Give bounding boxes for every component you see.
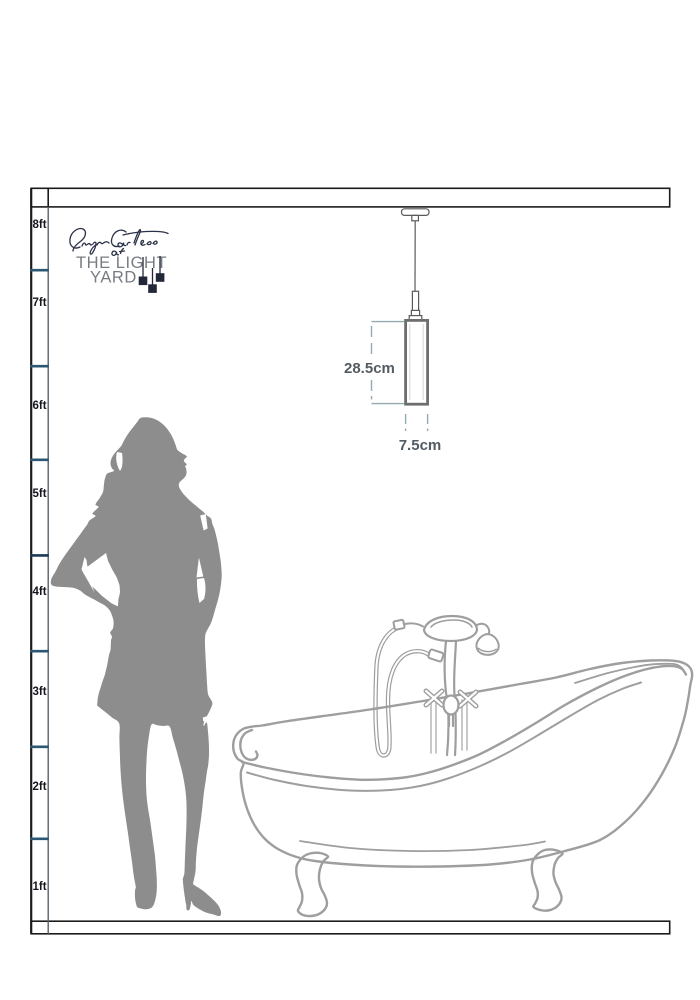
svg-text:YARD: YARD — [90, 269, 137, 287]
